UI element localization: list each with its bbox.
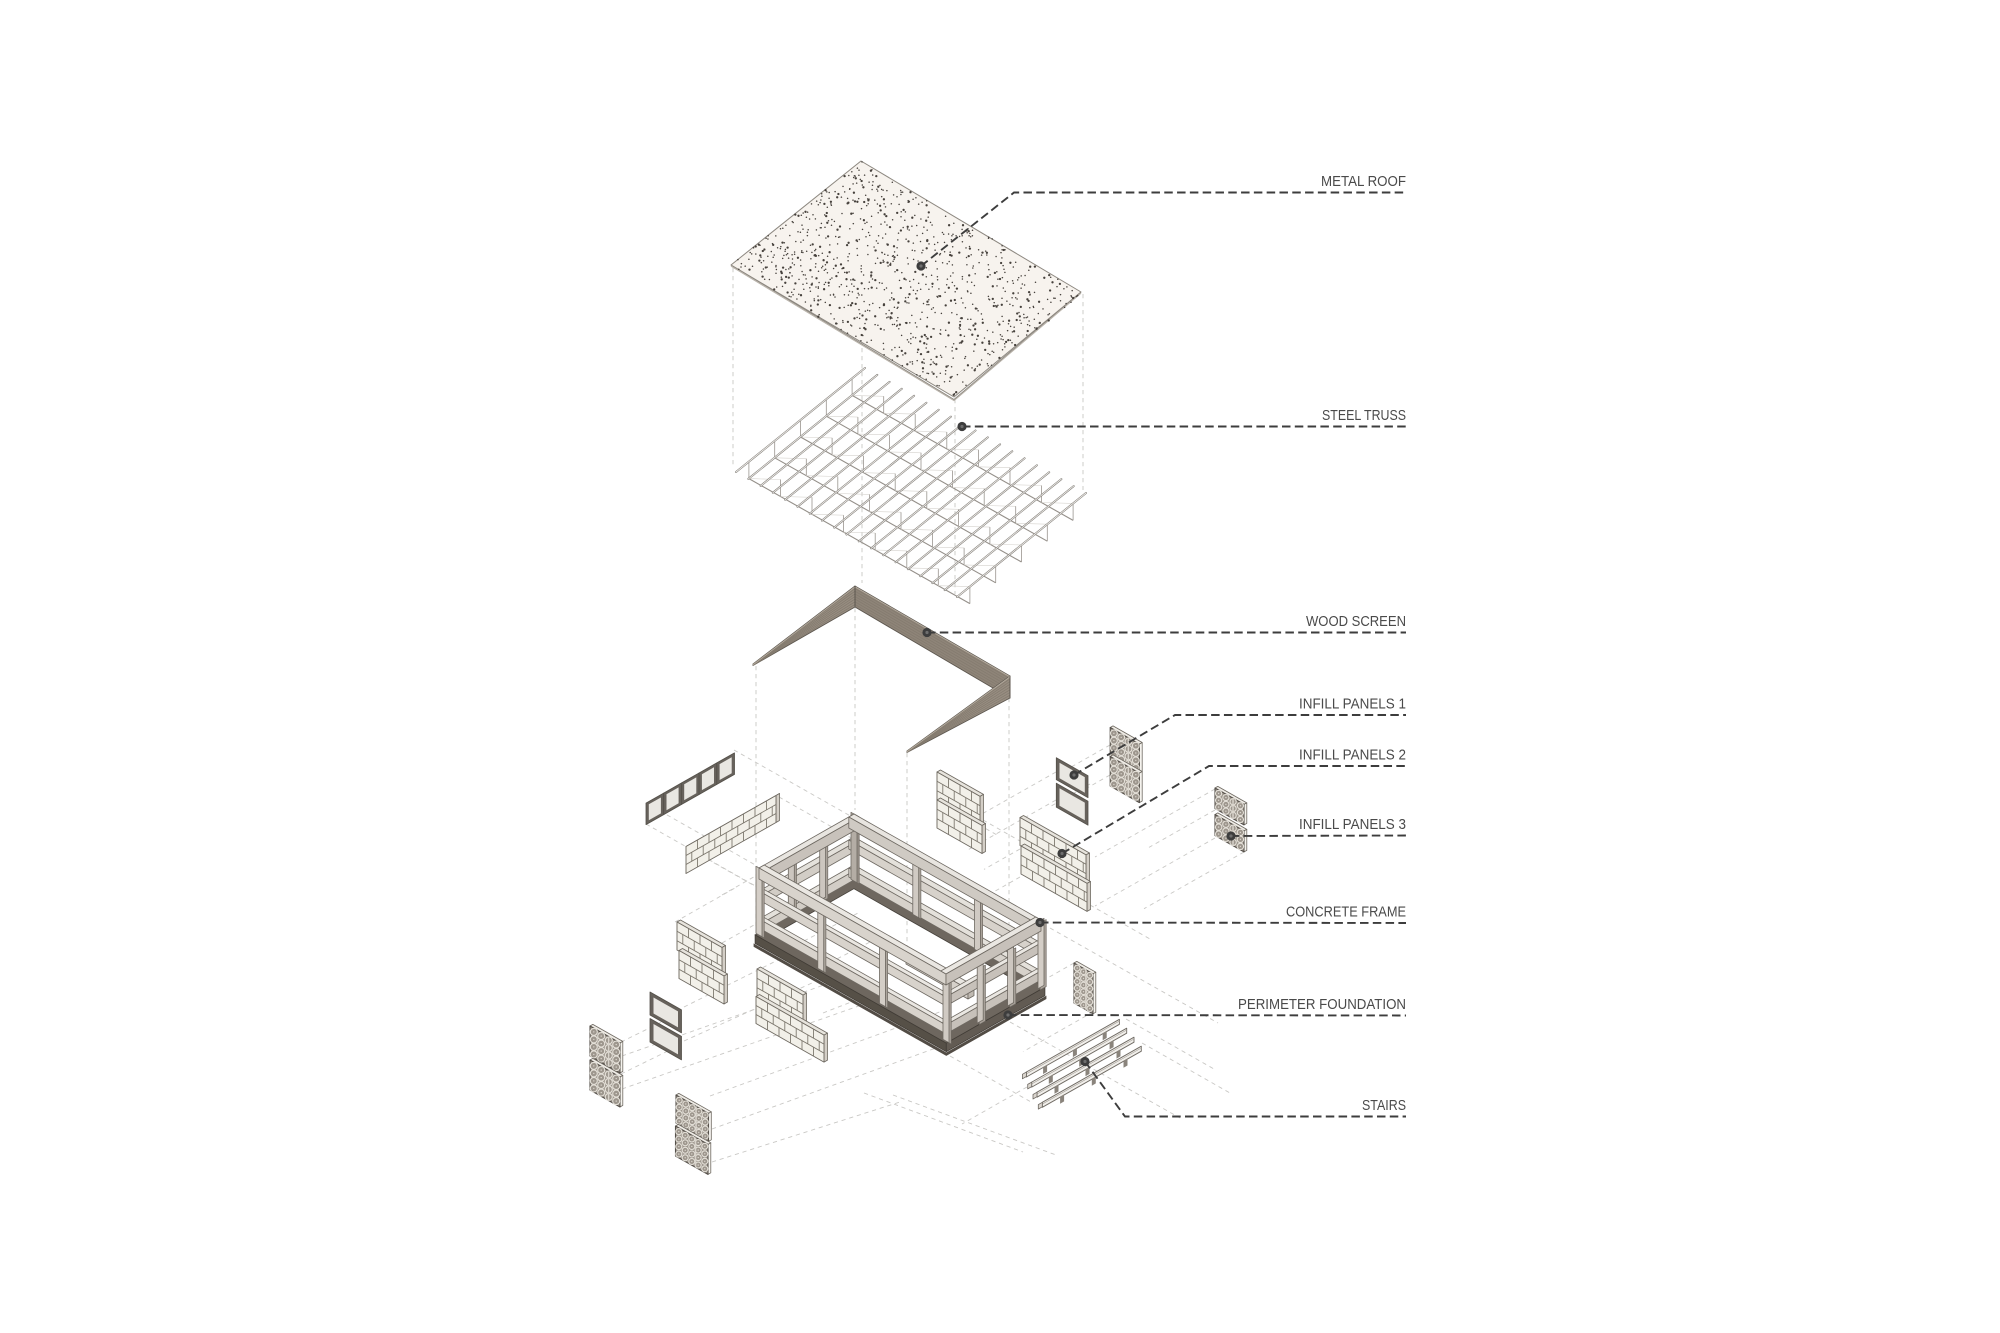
svg-text:STEEL TRUSS: STEEL TRUSS — [1322, 407, 1406, 424]
svg-text:STAIRS: STAIRS — [1362, 1097, 1406, 1114]
svg-text:INFILL PANELS 2: INFILL PANELS 2 — [1299, 747, 1406, 764]
svg-text:INFILL PANELS 1: INFILL PANELS 1 — [1299, 696, 1406, 713]
svg-text:METAL ROOF: METAL ROOF — [1321, 173, 1406, 190]
svg-text:PERIMETER FOUNDATION: PERIMETER FOUNDATION — [1238, 996, 1406, 1013]
svg-text:INFILL PANELS 3: INFILL PANELS 3 — [1299, 816, 1406, 833]
svg-text:WOOD SCREEN: WOOD SCREEN — [1306, 613, 1406, 630]
svg-text:CONCRETE FRAME: CONCRETE FRAME — [1286, 904, 1406, 921]
